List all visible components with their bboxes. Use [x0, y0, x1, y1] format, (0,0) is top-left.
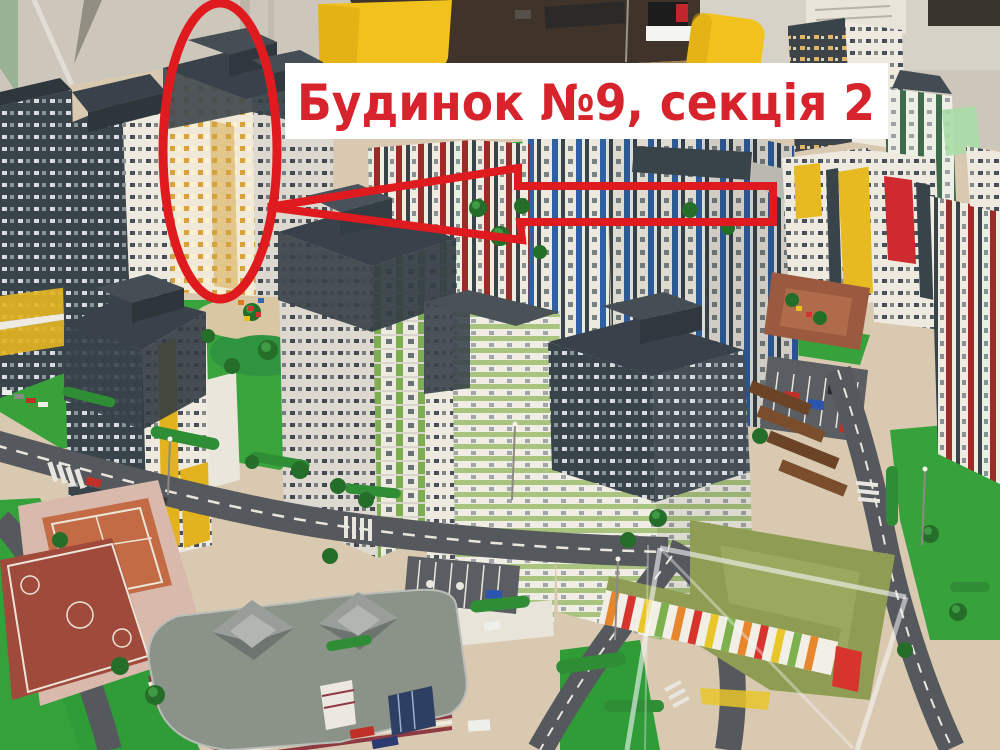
crosswalk: [856, 481, 880, 503]
scene-canvas: Будинок №9, секція 2: [0, 0, 1000, 750]
school-building: [149, 590, 467, 750]
architectural-model-photo: Будинок №9, секція 2: [0, 0, 1000, 750]
disabled-parking-mark: [426, 580, 434, 588]
red-panel: [884, 176, 916, 264]
annotation-text: Будинок №9, секція 2: [297, 74, 875, 132]
red-device-side: [676, 4, 688, 22]
